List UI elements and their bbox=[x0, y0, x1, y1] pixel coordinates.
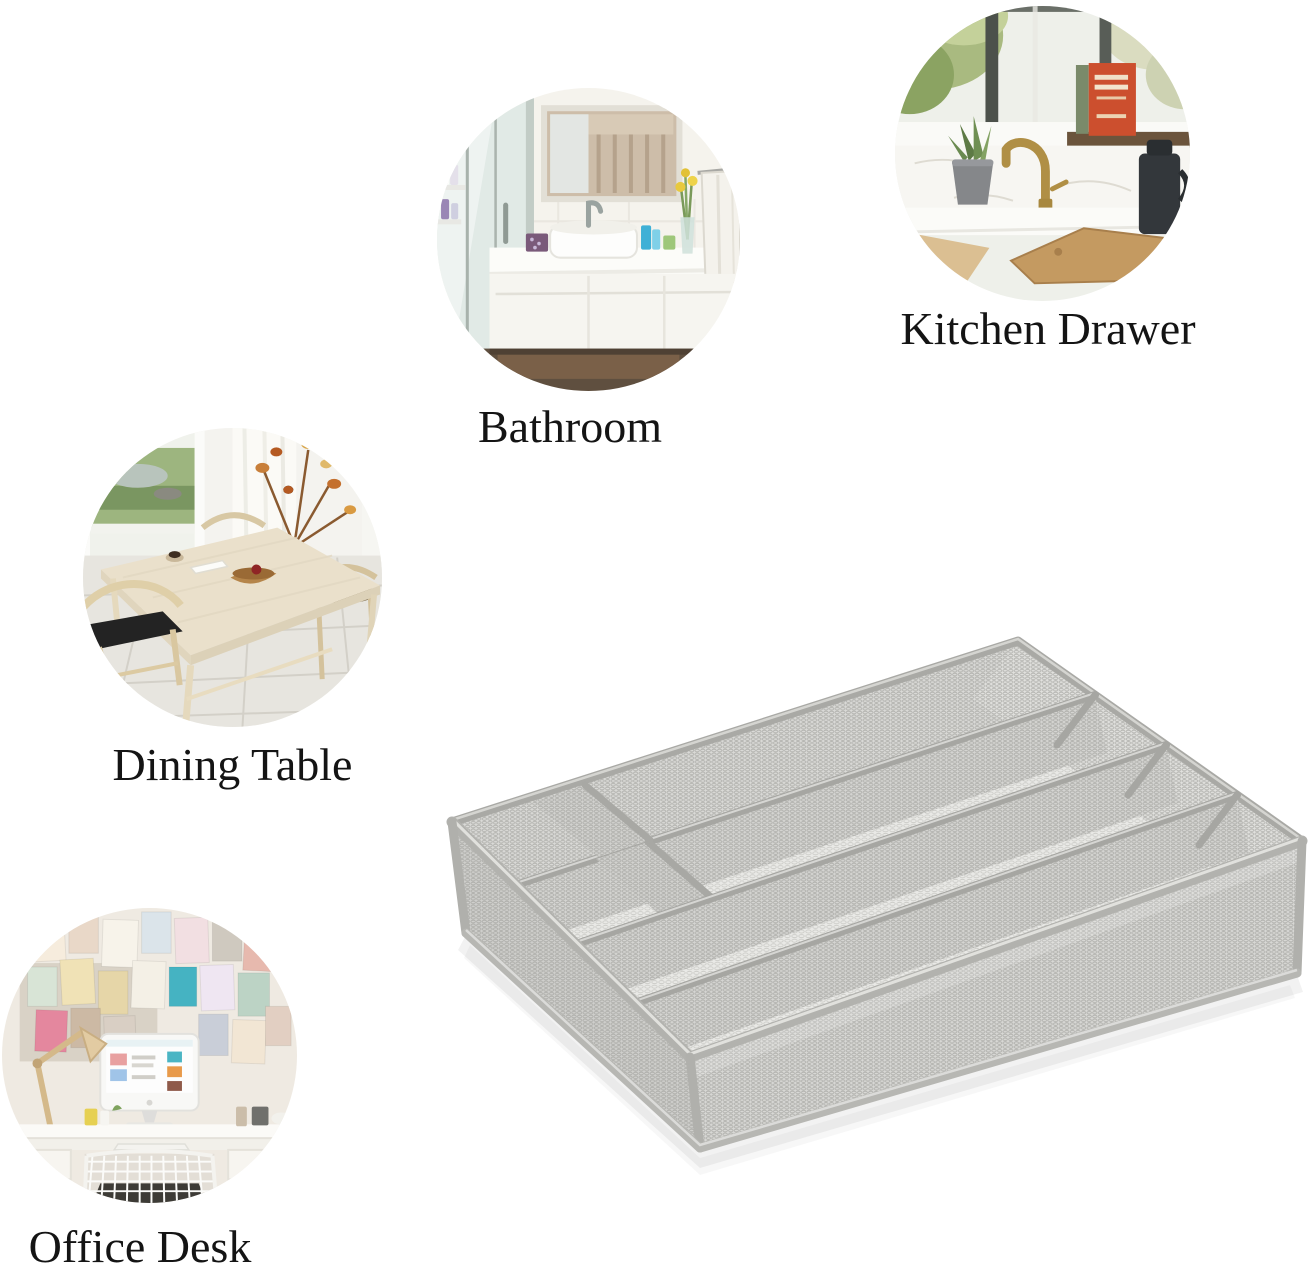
mesh-cutlery-tray-image bbox=[0, 0, 1309, 1272]
product-usage-collage: Kitchen Drawer bbox=[0, 0, 1309, 1272]
